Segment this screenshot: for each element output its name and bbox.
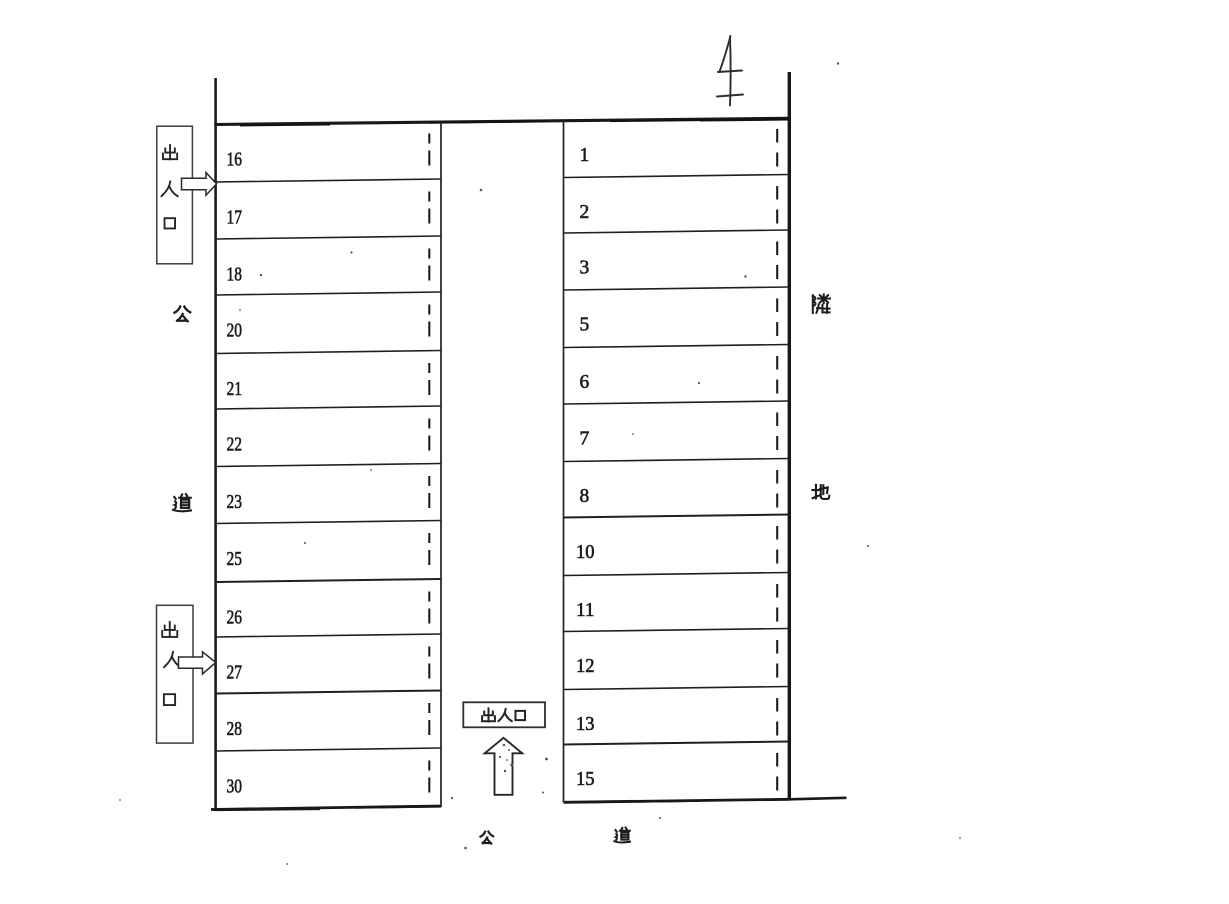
svg-text:5: 5: [580, 315, 590, 336]
svg-text:18: 18: [227, 265, 243, 286]
svg-text:27: 27: [227, 663, 243, 684]
svg-text:6: 6: [580, 372, 590, 393]
svg-text:8: 8: [580, 486, 590, 507]
svg-text:26: 26: [227, 608, 243, 629]
svg-text:16: 16: [227, 150, 243, 171]
svg-text:2: 2: [580, 202, 590, 223]
svg-text:1: 1: [580, 145, 590, 166]
svg-text:22: 22: [227, 435, 243, 456]
svg-text:15: 15: [576, 769, 595, 790]
svg-text:28: 28: [227, 719, 243, 740]
svg-text:25: 25: [227, 549, 243, 570]
svg-text:30: 30: [227, 777, 243, 798]
svg-text:23: 23: [227, 492, 243, 513]
svg-text:12: 12: [576, 656, 595, 677]
svg-text:17: 17: [227, 208, 243, 229]
svg-text:20: 20: [227, 321, 243, 342]
svg-text:10: 10: [576, 542, 595, 563]
svg-text:13: 13: [576, 714, 595, 735]
svg-text:7: 7: [580, 429, 590, 450]
svg-text:11: 11: [576, 600, 595, 621]
svg-text:3: 3: [580, 258, 590, 279]
svg-text:21: 21: [227, 379, 243, 400]
